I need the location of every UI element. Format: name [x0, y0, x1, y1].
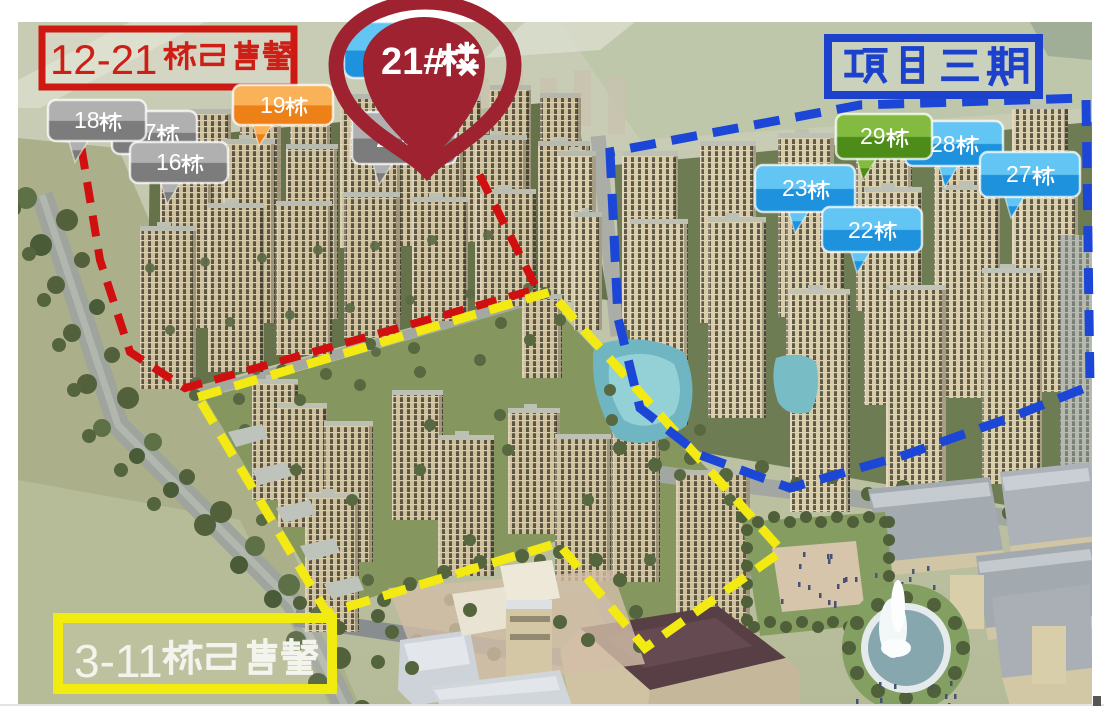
svg-text:12-21: 12-21 — [50, 36, 157, 83]
svg-text:22: 22 — [848, 217, 874, 243]
svg-text:23: 23 — [782, 175, 808, 201]
svg-text:28: 28 — [930, 131, 956, 157]
svg-text:29: 29 — [860, 123, 886, 149]
svg-text:16: 16 — [156, 149, 182, 175]
svg-text:27: 27 — [1006, 161, 1032, 187]
svg-text:18: 18 — [74, 107, 100, 133]
svg-text:19: 19 — [260, 92, 286, 118]
svg-text:3-11: 3-11 — [74, 635, 163, 687]
svg-text:21#: 21# — [381, 41, 444, 83]
